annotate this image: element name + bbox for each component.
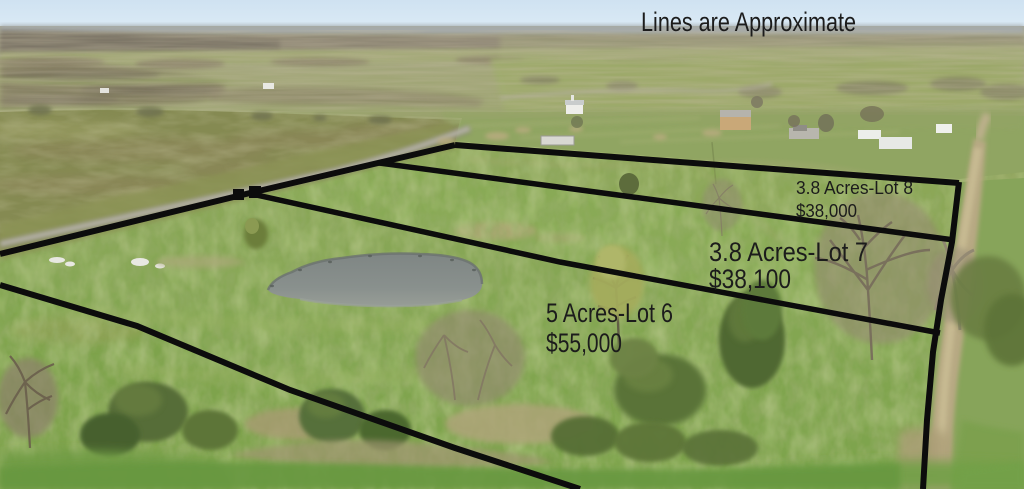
svg-text:Lines are Approximate: Lines are Approximate xyxy=(641,7,856,37)
svg-text:$38,100: $38,100 xyxy=(709,264,791,294)
svg-text:$38,000: $38,000 xyxy=(796,201,857,221)
svg-text:3.8 Acres-Lot 7: 3.8 Acres-Lot 7 xyxy=(709,237,868,267)
svg-text:$55,000: $55,000 xyxy=(546,328,622,358)
svg-text:5 Acres-Lot 6: 5 Acres-Lot 6 xyxy=(546,298,673,328)
svg-text:3.8 Acres-Lot 8: 3.8 Acres-Lot 8 xyxy=(796,178,913,198)
